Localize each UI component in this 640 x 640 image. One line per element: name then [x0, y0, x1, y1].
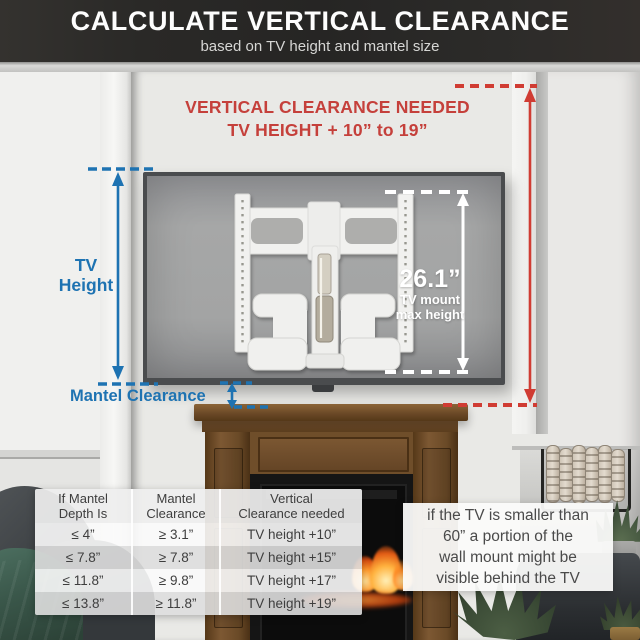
- table-cell: ≥ 9.8”: [159, 573, 193, 588]
- page-subtitle: based on TV height and mantel size: [200, 38, 439, 55]
- vertical-clearance-line1: VERTICAL CLEARANCE NEEDED: [150, 96, 505, 119]
- table-cell: TV height +19”: [247, 596, 336, 611]
- wall-right-batten: [512, 72, 536, 434]
- table-row: ≤ 4” ≥ 3.1” TV height +10”: [35, 523, 362, 546]
- mantel-clearance-label: Mantel Clearance: [70, 387, 220, 406]
- tv-bottom-tab: [312, 385, 334, 392]
- table-row: ≤ 11.8” ≥ 9.8” TV height +17”: [35, 569, 362, 592]
- note-line: 60” a portion of the: [443, 526, 573, 547]
- table-cell: TV height +15”: [247, 550, 336, 565]
- table-cell: ≥ 11.8”: [156, 596, 197, 611]
- mount-height-value: 26.1”: [386, 266, 474, 292]
- table-header-vertical: Vertical Clearance needed: [219, 489, 362, 523]
- table-cell: ≤ 7.8”: [66, 550, 100, 565]
- vertical-clearance-line2: TV HEIGHT + 10” to 19”: [150, 119, 505, 142]
- header-text: If Mantel: [58, 491, 108, 506]
- mount-height-line1: TV mount: [386, 292, 474, 307]
- header-text: Depth Is: [59, 506, 107, 521]
- table-header-depth: If Mantel Depth Is: [35, 489, 131, 523]
- note-line: if the TV is smaller than: [427, 505, 589, 526]
- page-title: CALCULATE VERTICAL CLEARANCE: [71, 7, 570, 35]
- small-tv-note: if the TV is smaller than 60” a portion …: [403, 503, 613, 591]
- table-row: ≤ 13.8” ≥ 11.8” TV height +19”: [35, 592, 362, 615]
- note-line: visible behind the TV: [436, 568, 580, 589]
- header-text: Clearance: [146, 506, 205, 521]
- table-cell: ≤ 11.8”: [63, 573, 104, 588]
- wall-right-shadow: [536, 72, 548, 434]
- palm-pot: [484, 626, 520, 640]
- wall-top-trim: [0, 62, 640, 72]
- tv-mount-max-height-label: 26.1” TV mount max height: [386, 266, 474, 322]
- table-cell: TV height +10”: [247, 527, 336, 542]
- vertical-clearance-caption: VERTICAL CLEARANCE NEEDED TV HEIGHT + 10…: [150, 96, 505, 142]
- table-header-row: If Mantel Depth Is Mantel Clearance Vert…: [35, 489, 362, 523]
- infographic-canvas: CALCULATE VERTICAL CLEARANCE based on TV…: [0, 0, 640, 640]
- header-text: Vertical: [270, 491, 313, 506]
- birch-log: [546, 445, 560, 503]
- table-cell: ≥ 7.8”: [159, 550, 193, 565]
- tv-height-line1: TV: [36, 255, 136, 275]
- table-cell: TV height +17”: [247, 573, 336, 588]
- fireplace-frieze-panel: [258, 437, 409, 472]
- header-text: Mantel: [156, 491, 195, 506]
- birch-log: [585, 447, 599, 502]
- note-line: wall mount might be: [439, 547, 577, 568]
- table-header-clearance: Mantel Clearance: [131, 489, 219, 523]
- birch-log: [572, 445, 586, 504]
- birch-log: [598, 445, 612, 503]
- corner-brass-pot: [610, 627, 640, 640]
- tv-height-label: TV Height: [36, 255, 136, 295]
- header-banner: CALCULATE VERTICAL CLEARANCE based on TV…: [0, 0, 640, 62]
- table-row: ≤ 7.8” ≥ 7.8” TV height +15”: [35, 546, 362, 569]
- header-text: Clearance needed: [238, 506, 344, 521]
- table-cell: ≤ 13.8”: [62, 596, 104, 611]
- birch-log: [559, 448, 573, 502]
- mantel-shelf: [194, 404, 468, 421]
- mantel-molding: [202, 421, 458, 432]
- table-cell: ≤ 4”: [71, 527, 94, 542]
- wall-left-batten: [100, 72, 131, 552]
- tv-height-line2: Height: [36, 275, 136, 295]
- clearance-table: If Mantel Depth Is Mantel Clearance Vert…: [35, 489, 362, 615]
- mount-height-line2: max height: [386, 307, 474, 322]
- wall-left-rail: [0, 450, 100, 459]
- birch-log: [611, 449, 625, 502]
- table-cell: ≥ 3.1”: [159, 527, 193, 542]
